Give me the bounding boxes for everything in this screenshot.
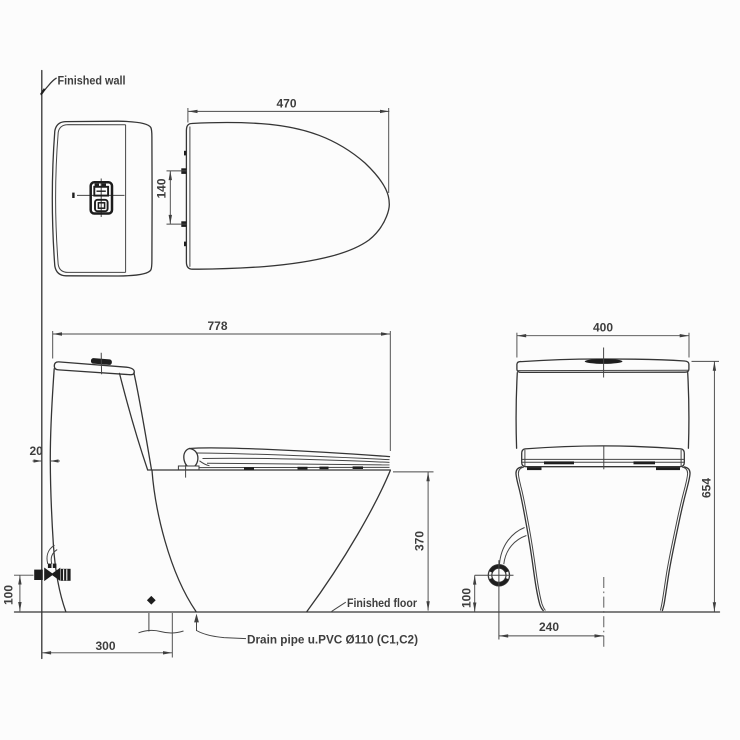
- svg-text:654: 654: [700, 478, 714, 498]
- svg-text:100: 100: [2, 585, 16, 605]
- svg-text:20: 20: [30, 444, 44, 458]
- svg-text:470: 470: [276, 97, 296, 111]
- svg-text:140: 140: [155, 178, 169, 198]
- svg-text:100: 100: [459, 588, 473, 608]
- svg-text:Drain pipe u.PVC Ø110 (C1,C2): Drain pipe u.PVC Ø110 (C1,C2): [247, 633, 418, 647]
- svg-text:Finished floor: Finished floor: [347, 596, 417, 610]
- svg-text:778: 778: [207, 319, 227, 333]
- svg-text:300: 300: [95, 639, 115, 653]
- svg-text:370: 370: [413, 531, 427, 551]
- svg-text:240: 240: [539, 620, 559, 634]
- svg-text:400: 400: [593, 320, 613, 334]
- svg-text:Finished wall: Finished wall: [58, 74, 126, 88]
